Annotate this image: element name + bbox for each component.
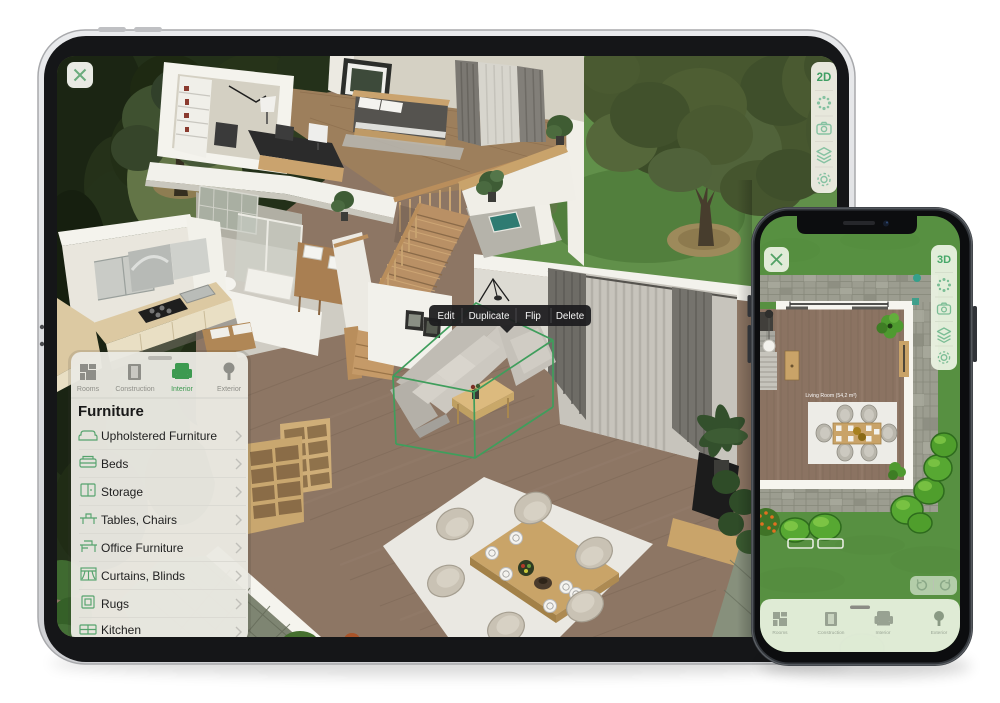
svg-text:Exterior: Exterior (931, 630, 948, 636)
svg-text:Interior: Interior (171, 386, 193, 393)
svg-text:Exterior: Exterior (217, 386, 242, 393)
svg-text:Delete: Delete (556, 311, 585, 322)
svg-text:Rugs: Rugs (101, 597, 129, 611)
svg-text:3D: 3D (937, 254, 951, 266)
svg-text:Storage: Storage (101, 485, 143, 499)
svg-text:2D: 2D (817, 72, 832, 84)
svg-text:Tables, Chairs: Tables, Chairs (101, 513, 177, 527)
svg-text:Furniture: Furniture (78, 403, 144, 420)
svg-text:Interior: Interior (876, 630, 891, 636)
svg-text:Flip: Flip (525, 311, 541, 322)
svg-text:Construction: Construction (818, 630, 845, 636)
svg-text:Living Room (54,2 m²): Living Room (54,2 m²) (805, 393, 857, 399)
svg-text:Rooms: Rooms (77, 386, 100, 393)
svg-text:Kitchen: Kitchen (101, 623, 141, 637)
svg-text:Duplicate: Duplicate (469, 311, 510, 322)
svg-text:Beds: Beds (101, 457, 128, 471)
svg-text:Office Furniture: Office Furniture (101, 541, 184, 555)
svg-text:Rooms: Rooms (772, 630, 788, 636)
svg-text:Construction: Construction (115, 386, 154, 393)
svg-text:Upholstered Furniture: Upholstered Furniture (101, 429, 217, 443)
svg-text:Curtains, Blinds: Curtains, Blinds (101, 569, 185, 583)
svg-text:Edit: Edit (438, 311, 455, 322)
